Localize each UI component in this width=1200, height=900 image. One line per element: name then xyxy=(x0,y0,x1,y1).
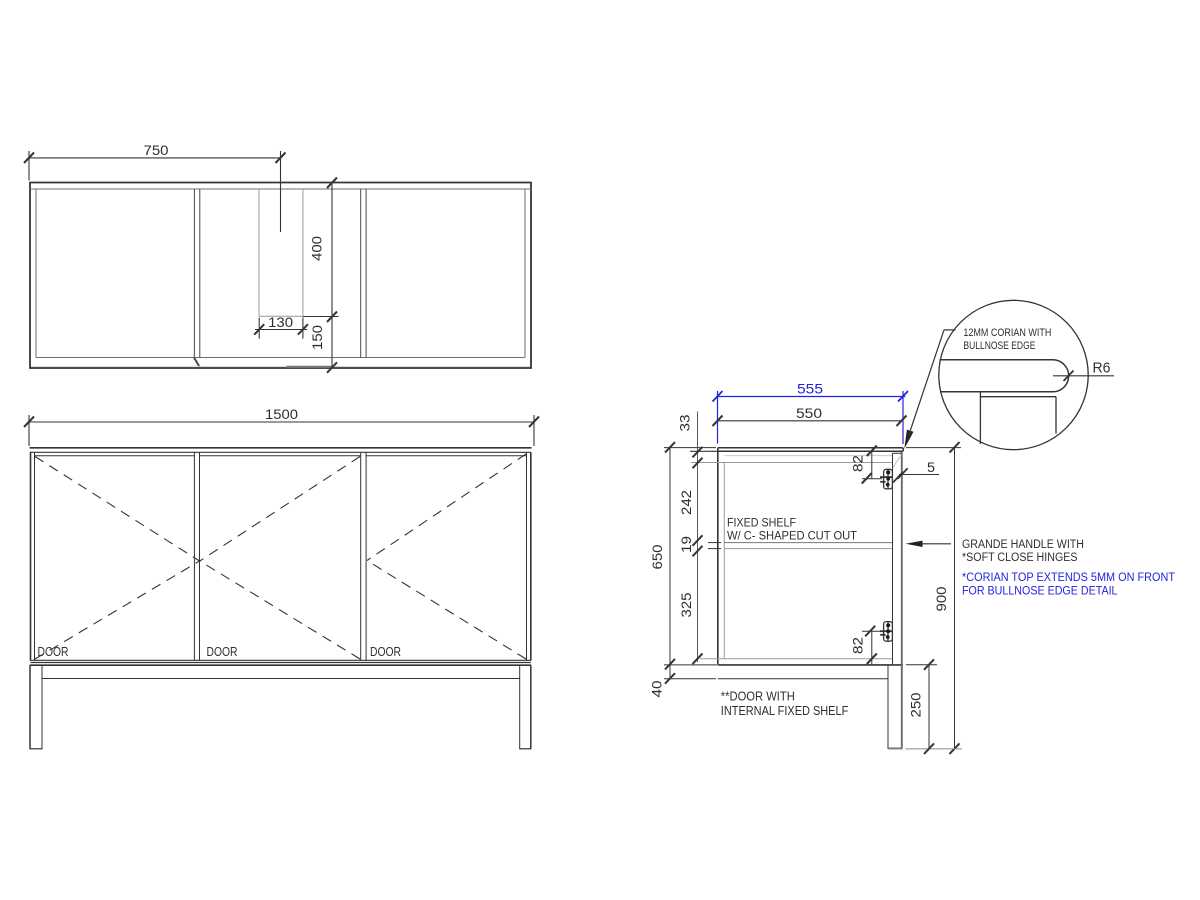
svg-text:BULLNOSE EDGE: BULLNOSE EDGE xyxy=(963,340,1035,352)
svg-text:150: 150 xyxy=(309,325,325,350)
svg-text:FOR BULLNOSE EDGE DETAIL: FOR BULLNOSE EDGE DETAIL xyxy=(962,586,1118,598)
svg-text:40: 40 xyxy=(649,680,665,697)
svg-text:W/ C- SHAPED CUT OUT: W/ C- SHAPED CUT OUT xyxy=(727,528,858,542)
svg-text:33: 33 xyxy=(677,414,693,431)
svg-text:GRANDE HANDLE WITH: GRANDE HANDLE WITH xyxy=(962,539,1084,551)
svg-text:**DOOR WITH: **DOOR WITH xyxy=(721,689,795,704)
svg-text:INTERNAL FIXED SHELF: INTERNAL FIXED SHELF xyxy=(721,703,849,718)
svg-text:R6: R6 xyxy=(1093,360,1111,377)
svg-text:12MM CORIAN WITH: 12MM CORIAN WITH xyxy=(963,327,1051,339)
svg-text:900: 900 xyxy=(933,586,949,611)
svg-text:DOOR: DOOR xyxy=(207,644,238,659)
svg-text:82: 82 xyxy=(850,637,866,654)
svg-text:550: 550 xyxy=(796,405,822,421)
svg-text:DOOR: DOOR xyxy=(370,644,401,659)
svg-text:82: 82 xyxy=(850,455,866,472)
svg-text:*SOFT CLOSE HINGES: *SOFT CLOSE HINGES xyxy=(962,552,1078,564)
svg-text:555: 555 xyxy=(797,381,823,397)
svg-text:5: 5 xyxy=(927,459,935,475)
svg-text:DOOR: DOOR xyxy=(38,644,69,659)
svg-text:130: 130 xyxy=(268,314,293,330)
svg-text:1500: 1500 xyxy=(265,406,298,422)
svg-text:250: 250 xyxy=(908,692,924,717)
svg-text:19: 19 xyxy=(678,536,694,553)
svg-text:242: 242 xyxy=(678,490,694,515)
svg-text:400: 400 xyxy=(309,236,325,261)
svg-text:750: 750 xyxy=(144,142,169,158)
svg-text:650: 650 xyxy=(649,544,665,569)
svg-text:*CORIAN TOP EXTENDS 5MM ON FRO: *CORIAN TOP EXTENDS 5MM ON FRONT xyxy=(962,572,1175,584)
svg-text:325: 325 xyxy=(678,592,694,617)
